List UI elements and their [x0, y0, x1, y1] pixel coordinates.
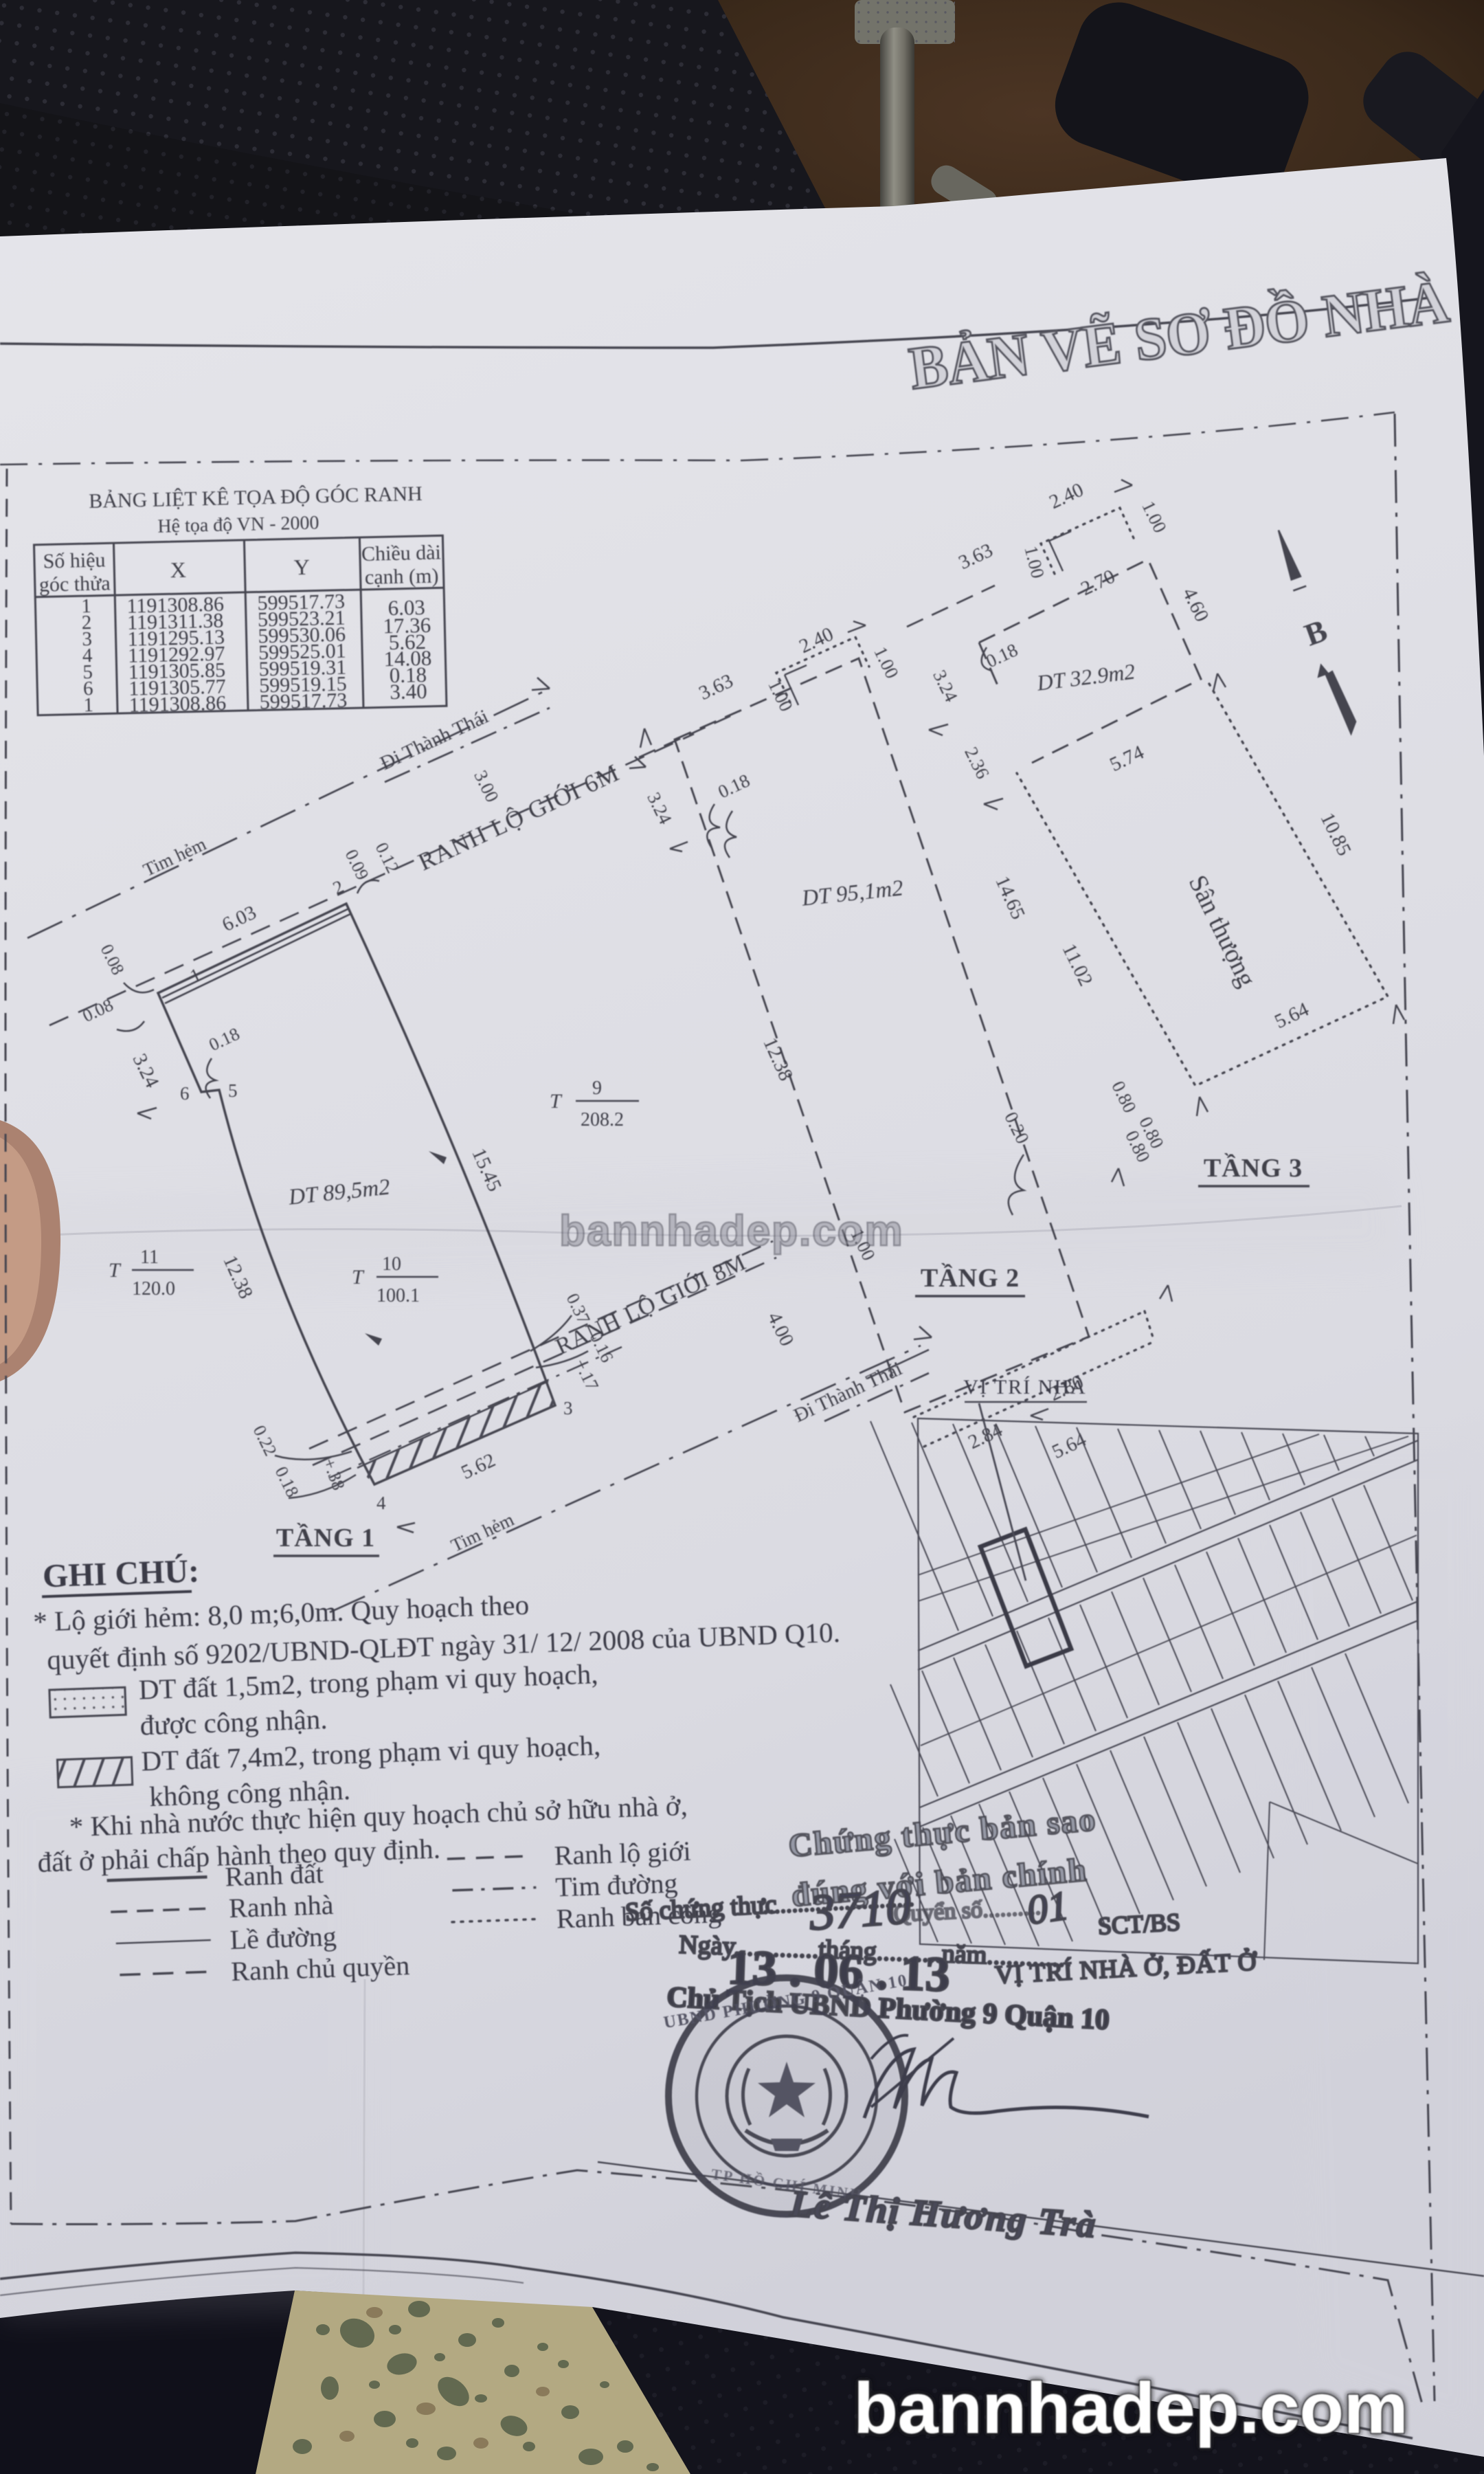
svg-text:Chiều dài: Chiều dài — [361, 541, 442, 566]
svg-text:01: 01 — [1024, 1882, 1072, 1933]
svg-text:Ranh chủ quyền: Ranh chủ quyền — [231, 1950, 410, 1987]
svg-text:VỊ TRÍ NHÀ: VỊ TRÍ NHÀ — [963, 1376, 1086, 1398]
svg-text:Ranh lộ giới: Ranh lộ giới — [554, 1836, 691, 1871]
svg-text:3: 3 — [563, 1398, 573, 1418]
svg-text:T: T — [109, 1259, 122, 1282]
svg-text:1: 1 — [83, 694, 93, 716]
svg-text:11: 11 — [140, 1247, 159, 1268]
svg-text:10: 10 — [382, 1253, 401, 1275]
svg-text:cạnh (m): cạnh (m) — [365, 564, 439, 588]
svg-text:Ranh đất: Ranh đất — [225, 1858, 324, 1892]
svg-text:được công nhận.: được công nhận. — [139, 1703, 328, 1741]
svg-text:100.1: 100.1 — [376, 1285, 420, 1306]
svg-text:5: 5 — [228, 1080, 238, 1101]
svg-text:T: T — [550, 1090, 563, 1113]
svg-text:6: 6 — [180, 1083, 190, 1104]
svg-text:120.0: 120.0 — [132, 1278, 175, 1300]
svg-text:góc thửa: góc thửa — [39, 572, 111, 596]
svg-text:Lề đường: Lề đường — [229, 1921, 337, 1955]
svg-text:bannhadep.com: bannhadep.com — [854, 2369, 1408, 2449]
svg-text:Số hiệu: Số hiệu — [43, 548, 106, 572]
svg-text:SCT/BS: SCT/BS — [1097, 1908, 1181, 1939]
svg-text:Hệ tọa độ VN - 2000: Hệ tọa độ VN - 2000 — [157, 512, 319, 537]
svg-text:X: X — [170, 557, 186, 583]
svg-text:3.40: 3.40 — [390, 679, 427, 704]
svg-text:T: T — [352, 1266, 365, 1289]
svg-text:4: 4 — [376, 1493, 386, 1513]
svg-text:Y: Y — [293, 555, 310, 580]
svg-text:TẦNG 3: TẦNG 3 — [1204, 1153, 1303, 1183]
svg-text:9: 9 — [592, 1078, 602, 1099]
svg-text:599517.73: 599517.73 — [259, 689, 347, 714]
svg-text:3710: 3710 — [807, 1878, 912, 1941]
svg-text:1191308.86: 1191308.86 — [128, 692, 226, 717]
svg-text:TẦNG 1: TẦNG 1 — [276, 1523, 375, 1552]
svg-text:Ranh nhà: Ranh nhà — [228, 1889, 334, 1924]
svg-text:bannhadep.com: bannhadep.com — [559, 1207, 903, 1255]
svg-text:208.2: 208.2 — [581, 1109, 624, 1130]
svg-text:TẦNG 2: TẦNG 2 — [921, 1263, 1020, 1293]
svg-text:GHI CHÚ:: GHI CHÚ: — [42, 1552, 200, 1594]
